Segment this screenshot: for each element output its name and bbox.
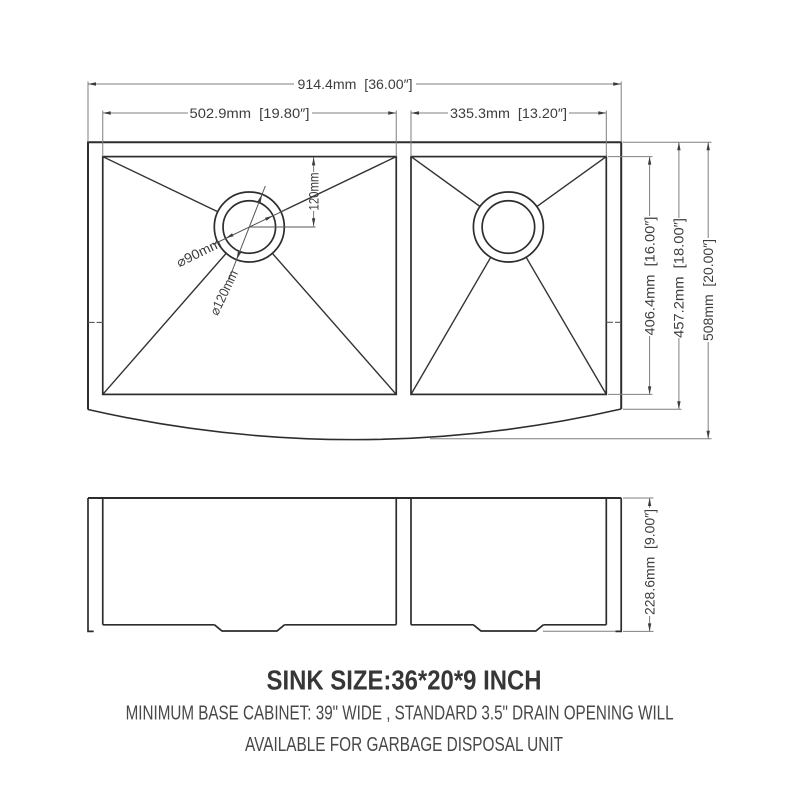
svg-text:914.4mm [36.00″]: 914.4mm [36.00″] [298, 77, 413, 92]
svg-text:MINIMUM BASE CABINET: 39" WIDE: MINIMUM BASE CABINET: 39" WIDE , STANDAR… [126, 702, 674, 725]
svg-text:120mm: 120mm [306, 173, 321, 211]
svg-text:228.6mm [9.00″]: 228.6mm [9.00″] [642, 509, 657, 615]
svg-text:502.9mm [19.80″]: 502.9mm [19.80″] [190, 106, 310, 121]
svg-text:335.3mm [13.20″]: 335.3mm [13.20″] [450, 106, 567, 121]
svg-text:406.4mm [16.00″]: 406.4mm [16.00″] [642, 217, 657, 336]
svg-text:457.2mm [18.00″]: 457.2mm [18.00″] [672, 218, 687, 338]
svg-text:AVAILABLE FOR GARBAGE DISPOSAL: AVAILABLE FOR GARBAGE DISPOSAL UNIT [245, 733, 563, 756]
svg-text:SINK SIZE:36*20*9 INCH: SINK SIZE:36*20*9 INCH [267, 665, 542, 696]
svg-text:508mm [20.00″]: 508mm [20.00″] [701, 239, 716, 341]
